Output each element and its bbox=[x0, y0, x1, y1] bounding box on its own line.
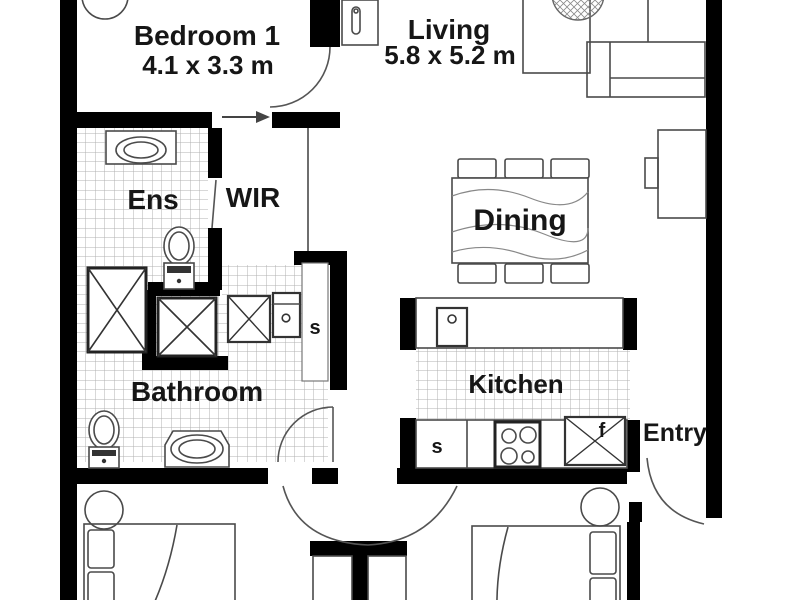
pillow bbox=[590, 532, 616, 574]
pillow bbox=[88, 572, 114, 600]
ensuite-basin bbox=[106, 131, 176, 164]
closet-divider-wall bbox=[352, 556, 368, 600]
entry-label: Entry bbox=[643, 419, 707, 447]
bathroom-label: Bathroom bbox=[131, 376, 263, 407]
kitchen-sink-label: s bbox=[431, 436, 442, 458]
bedroom1-stool bbox=[82, 0, 128, 19]
bedroom1-lower-door-arc bbox=[283, 486, 368, 545]
bathroom-toilet bbox=[89, 411, 119, 468]
dining-chair bbox=[551, 264, 589, 283]
fridge: f bbox=[565, 417, 625, 465]
living-dims: 5.8 x 5.2 m bbox=[384, 40, 516, 70]
dining-chair bbox=[458, 159, 496, 178]
bedroom1-dims: 4.1 x 3.3 m bbox=[142, 50, 274, 80]
bedroom1-bottom-wall-right bbox=[272, 112, 340, 128]
entry-left-wall bbox=[627, 420, 640, 472]
bathroom-tiles-right bbox=[302, 381, 328, 462]
bed bbox=[472, 526, 620, 600]
door-plate bbox=[342, 0, 378, 45]
hall-bathroom-wall bbox=[330, 251, 347, 390]
sofa bbox=[587, 42, 705, 97]
ensuite-wir-wall-top bbox=[208, 128, 222, 178]
ensuite-wir-wall-bottom bbox=[208, 228, 222, 290]
linen-label: s bbox=[309, 317, 320, 339]
kitchen-right-wall-top bbox=[623, 298, 637, 350]
floor-plan: Bedroom 1 4.1 x 3.3 m Living 5.8 x 5.2 m… bbox=[0, 0, 800, 600]
blanket-fold bbox=[497, 527, 508, 600]
bedroom-bottom-left bbox=[84, 491, 235, 600]
bedside-stool bbox=[581, 488, 619, 526]
dining-area: Dining bbox=[452, 159, 589, 283]
entry-door-arc bbox=[647, 458, 704, 524]
closet-left bbox=[313, 556, 352, 600]
laundry-tub bbox=[273, 293, 300, 337]
dining-chair bbox=[505, 159, 543, 178]
bedroom1-label: Bedroom 1 bbox=[134, 20, 280, 51]
bathroom-basin bbox=[165, 431, 229, 467]
bottom-wall-left bbox=[77, 468, 268, 484]
cooktop bbox=[495, 422, 540, 467]
floor-plan-drawing: Bedroom 1 4.1 x 3.3 m Living 5.8 x 5.2 m… bbox=[0, 0, 800, 600]
entry-left-door-jamb bbox=[629, 502, 642, 522]
bedroom-bottom-right bbox=[472, 488, 620, 600]
bedroom2-right-wall bbox=[627, 522, 640, 600]
kitchen-label: Kitchen bbox=[468, 369, 563, 399]
dining-chair bbox=[551, 159, 589, 178]
wicker-chair bbox=[552, 0, 604, 20]
right-outer-wall bbox=[706, 0, 722, 518]
dining-chair bbox=[505, 264, 543, 283]
ensuite-toilet bbox=[164, 227, 194, 289]
dining-chair bbox=[458, 264, 496, 283]
pillow bbox=[88, 530, 114, 568]
bedroom1-bottom-wall-left bbox=[77, 112, 212, 128]
kitchen-left-wall-bottom bbox=[400, 418, 416, 470]
closet-top-wall bbox=[310, 541, 407, 556]
bedroom1-living-divider-wall bbox=[310, 0, 340, 47]
blanket-fold bbox=[151, 525, 177, 600]
entry: Entry bbox=[643, 419, 707, 447]
left-outer-wall bbox=[60, 0, 77, 600]
ensuite-door-leaf bbox=[212, 180, 216, 228]
bottom-wall-stub bbox=[312, 468, 338, 484]
tv bbox=[645, 158, 658, 188]
bedroom1-door-arc bbox=[270, 47, 330, 107]
walk-in-robe: WIR bbox=[226, 128, 308, 251]
ensuite-label: Ens bbox=[127, 184, 178, 215]
fridge-label: f bbox=[599, 420, 606, 442]
wir-label: WIR bbox=[226, 182, 280, 213]
shower-enclosure-bottom-wall bbox=[142, 356, 228, 370]
kitchen-left-wall-top bbox=[400, 298, 416, 350]
utility-tiles bbox=[222, 265, 302, 296]
pillow bbox=[590, 578, 616, 600]
dining-label: Dining bbox=[473, 204, 566, 237]
tv-unit bbox=[658, 130, 706, 218]
kitchen-sink-top bbox=[437, 308, 467, 346]
bottom-wall-right bbox=[397, 468, 627, 484]
wir-entry-arrow bbox=[222, 111, 270, 123]
closet-right bbox=[368, 556, 406, 600]
bedroom2-door-arc bbox=[368, 486, 457, 545]
